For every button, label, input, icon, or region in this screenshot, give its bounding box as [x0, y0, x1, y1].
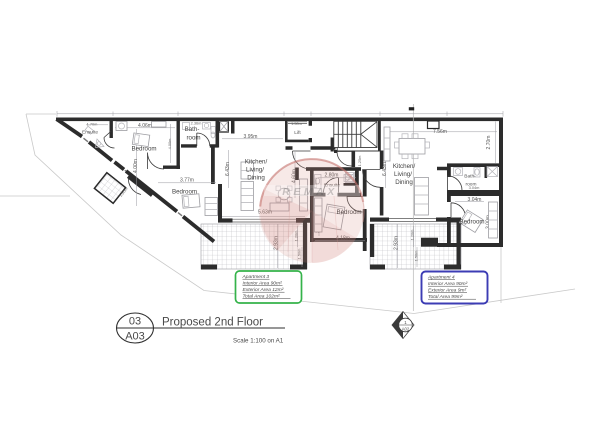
svg-text:1.70m: 1.70m — [87, 122, 98, 127]
svg-text:Bedroom: Bedroom — [459, 219, 484, 226]
svg-text:A03: A03 — [125, 331, 145, 343]
svg-text:Bedroom: Bedroom — [172, 189, 197, 196]
svg-text:3.04m: 3.04m — [468, 197, 482, 203]
svg-text:1.25m: 1.25m — [357, 156, 362, 167]
svg-text:7.56m: 7.56m — [433, 129, 447, 135]
svg-text:4.06m: 4.06m — [138, 123, 152, 129]
svg-text:4.00m: 4.00m — [167, 139, 172, 150]
svg-text:4.00m: 4.00m — [133, 159, 139, 173]
svg-text:1.20m: 1.20m — [410, 230, 415, 241]
svg-text:Ensuite: Ensuite — [82, 130, 98, 136]
svg-text:Dining: Dining — [247, 175, 265, 182]
svg-text:A02: A02 — [402, 327, 410, 332]
svg-text:Living/: Living/ — [394, 171, 412, 178]
svg-text:Bath-: Bath- — [185, 126, 200, 133]
svg-text:Kitchen/: Kitchen/ — [245, 159, 268, 166]
svg-text:REMAX: REMAX — [282, 186, 337, 198]
svg-text:Living/: Living/ — [246, 167, 264, 174]
svg-text:2.36m: 2.36m — [191, 120, 202, 125]
svg-text:6.43m: 6.43m — [225, 162, 231, 176]
svg-text:Proposed 2nd Floor: Proposed 2nd Floor — [162, 317, 263, 329]
svg-text:Lift: Lift — [294, 130, 301, 136]
svg-text:03: 03 — [129, 316, 141, 328]
svg-text:room: room — [466, 182, 477, 188]
svg-text:1.50m: 1.50m — [291, 121, 302, 126]
svg-text:1.50m: 1.50m — [414, 251, 419, 262]
svg-text:Scale 1:100 on A1: Scale 1:100 on A1 — [233, 338, 284, 345]
svg-text:2.93m: 2.93m — [394, 236, 400, 250]
svg-text:3.77m: 3.77m — [180, 178, 194, 184]
svg-text:Dining: Dining — [395, 179, 413, 186]
svg-text:Bath-: Bath- — [464, 174, 476, 180]
svg-text:Kitchen/: Kitchen/ — [393, 163, 416, 170]
svg-text:Bedroom: Bedroom — [131, 146, 156, 153]
svg-text:3.95m: 3.95m — [244, 134, 258, 140]
svg-text:room: room — [186, 135, 200, 142]
svg-text:2.70m: 2.70m — [486, 136, 492, 150]
svg-text:6.43m: 6.43m — [382, 162, 388, 176]
